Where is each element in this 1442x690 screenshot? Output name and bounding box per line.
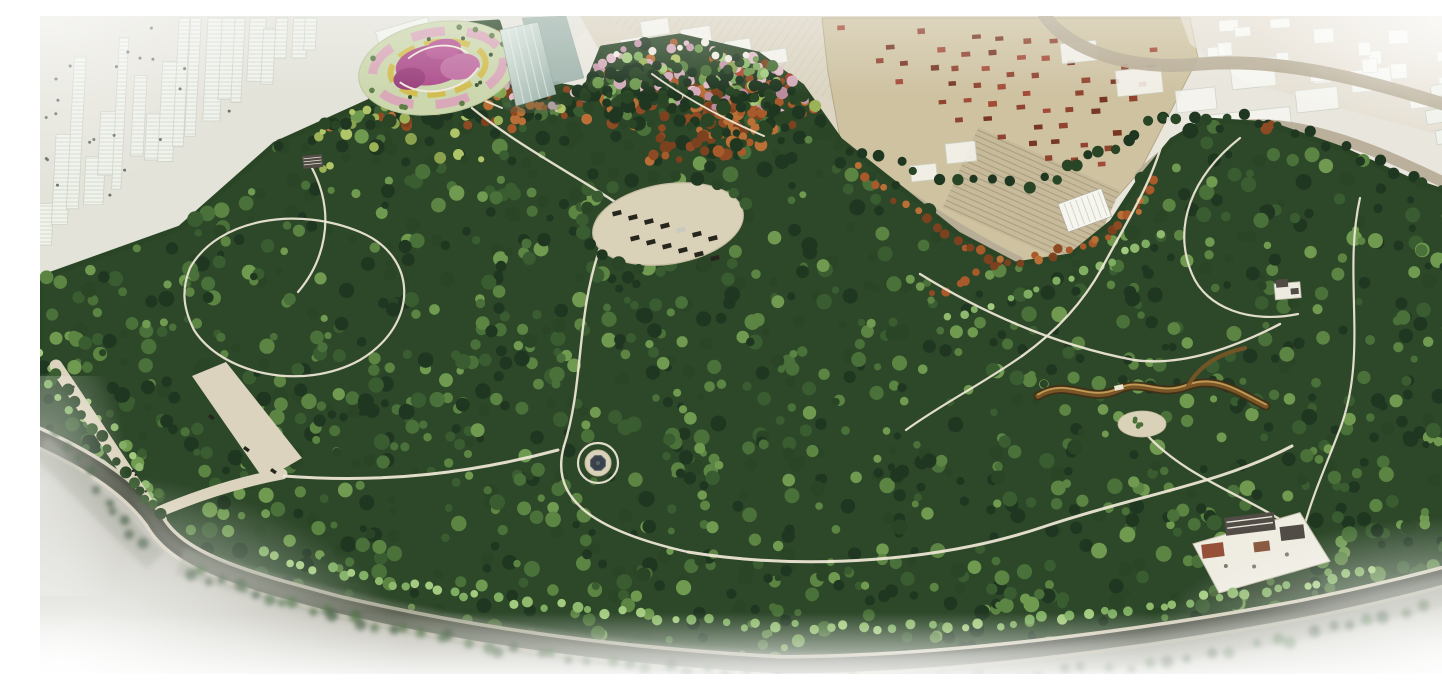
clearing-plaza	[1118, 411, 1166, 437]
scene-svg	[40, 16, 1442, 674]
park-aerial-rendering	[40, 16, 1442, 674]
